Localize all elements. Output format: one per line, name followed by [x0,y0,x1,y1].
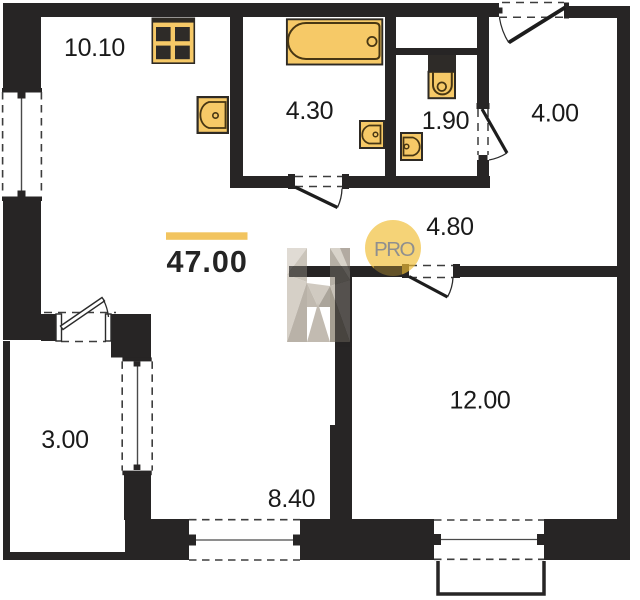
svg-text:4.00: 4.00 [531,100,578,128]
svg-text:10.10: 10.10 [64,34,125,62]
svg-text:1.90: 1.90 [422,107,469,135]
svg-text:47.00: 47.00 [167,245,248,279]
svg-text:PRO: PRO [374,238,414,261]
svg-text:4.30: 4.30 [286,97,333,125]
svg-text:12.00: 12.00 [449,387,510,415]
svg-text:3.00: 3.00 [41,426,88,454]
svg-text:4.80: 4.80 [426,213,473,241]
svg-text:8.40: 8.40 [268,485,315,513]
